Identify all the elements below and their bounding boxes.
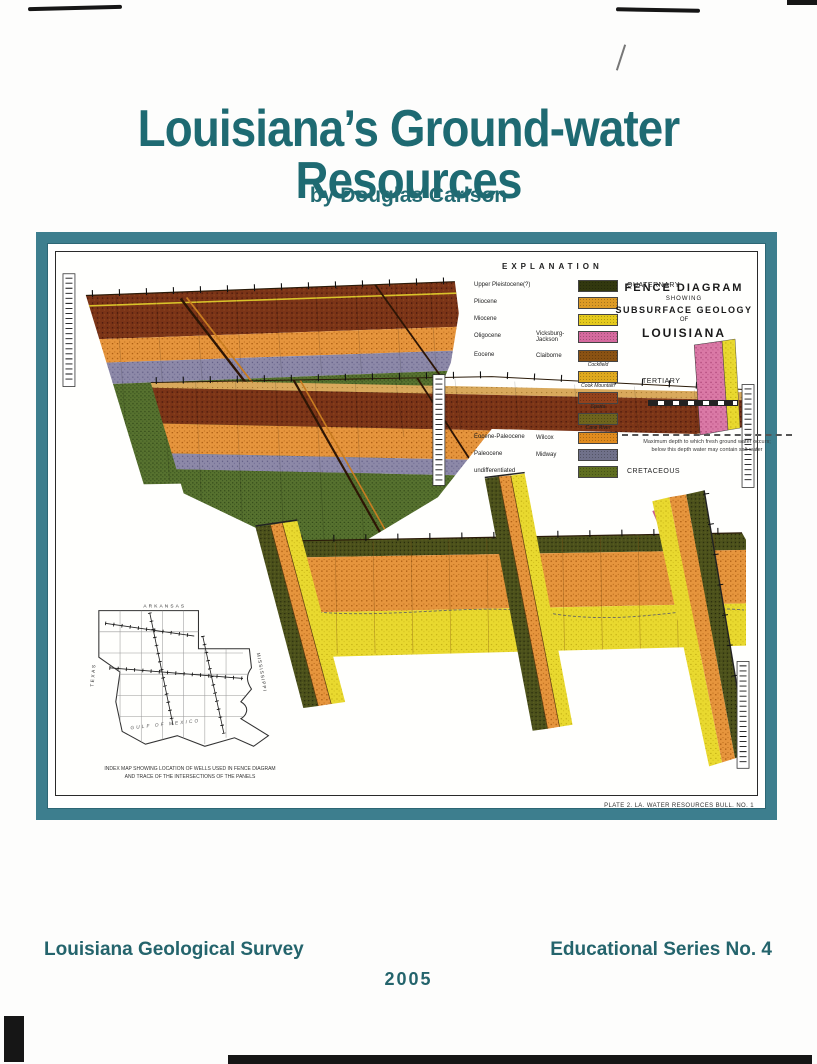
legend-row: Cane River [474,408,704,429]
map-label-texas: TEXAS [90,663,98,687]
depth-scale [737,661,749,768]
legend-swatch-cane-river: Cane River [578,413,618,425]
fence-trace-lines [105,613,243,734]
dashed-contact-line [622,434,792,436]
louisiana-outline-map: ARKANSAS TEXAS MISSISSIPPI GULF OF MEXIC… [84,600,296,759]
legend-swatch-cretaceous [578,466,618,478]
cover-page: Louisiana’s Ground-water Resources by Do… [0,0,817,1064]
legend-group-label: Vicksburg-Jackson [536,331,578,343]
legend-swatch-sparta: Sparta [578,392,618,404]
legend-era-label: CRETACEOUS [627,468,680,475]
legend-swatch-midway [578,449,618,461]
legend-swatch-wilcox [578,432,618,444]
scan-artifact [28,5,122,11]
legend-group-label: Claiborne [536,353,578,359]
publisher-name: Louisiana Geological Survey [44,939,304,961]
legend-row: Eocene Claiborne Cockfield [474,345,704,366]
map-label-gulf: GULF OF MEXICO [130,718,200,731]
plate-frame: EXPLANATION Upper Pleistocene(?) QUATERN… [36,232,777,820]
scan-artifact [228,1055,812,1064]
map-label-mississippi: MISSISSIPPI [255,652,268,692]
legend-swatch-cockfield: Cockfield [578,350,618,362]
diagram-title-block: FENCE DIAGRAM SHOWING SUBSURFACE GEOLOGY… [608,282,760,340]
legend-epoch-label: undifferentiated [474,468,536,475]
legend-epoch-label: Upper Pleistocene(?) [474,282,536,289]
scan-artifact [616,7,700,12]
legend-epoch-label: Paleocene [474,451,536,458]
diagram-title-line: LOUISIANA [608,326,760,340]
legend-epoch-label: Eocene-Paleocene [474,434,536,441]
depth-scale [433,375,445,486]
byline: by Douglas Carlson [0,184,817,208]
legend-epoch-label: Miocene [474,316,536,323]
series-number: Educational Series No. 4 [550,939,772,961]
diagram-title-line: OF [608,317,760,323]
index-map-caption-line: AND TRACE OF THE INTERSECTIONS OF THE PA… [84,774,296,782]
scan-artifact [4,1016,24,1062]
legend-group-label: Wilcox [536,435,578,441]
publication-year: 2005 [0,969,817,990]
legend-row: undifferentiated CRETACEOUS [474,463,704,480]
depth-note-line: Maximum depth to which fresh ground wate… [622,439,792,447]
depth-note: Maximum depth to which fresh ground wate… [622,434,792,454]
index-map-caption-line: INDEX MAP SHOWING LOCATION OF WELLS USED… [84,766,296,774]
depth-scale [63,274,75,387]
map-label-arkansas: ARKANSAS [143,603,186,609]
index-map: ARKANSAS TEXAS MISSISSIPPI GULF OF MEXIC… [84,600,296,792]
legend-group-label: Midway [536,452,578,458]
scan-artifact [616,44,626,70]
depth-note-line: below this depth water may contain salt … [622,447,792,455]
fence-diagram-plate: EXPLANATION Upper Pleistocene(?) QUATERN… [55,251,758,796]
index-map-caption: INDEX MAP SHOWING LOCATION OF WELLS USED… [84,766,296,781]
plate-caption: PLATE 2. LA. WATER RESOURCES BULL. NO. 1 [604,803,754,809]
legend-era-tertiary: TERTIARY [642,378,680,385]
diagram-title-line: SUBSURFACE GEOLOGY [608,305,760,315]
diagram-title-line: FENCE DIAGRAM [608,282,760,294]
legend-epoch-label: Oligocene [474,333,536,340]
legend-epoch-label: Pliocene [474,299,536,306]
explanation-title: EXPLANATION [502,262,704,271]
legend-epoch-label: Eocene [474,352,536,359]
legend-swatch-cook-mountain: Cook Mountain [578,371,618,383]
diagram-title-line: SHOWING [608,296,760,302]
scan-artifact [787,0,817,5]
map-scale-bar [648,400,738,406]
